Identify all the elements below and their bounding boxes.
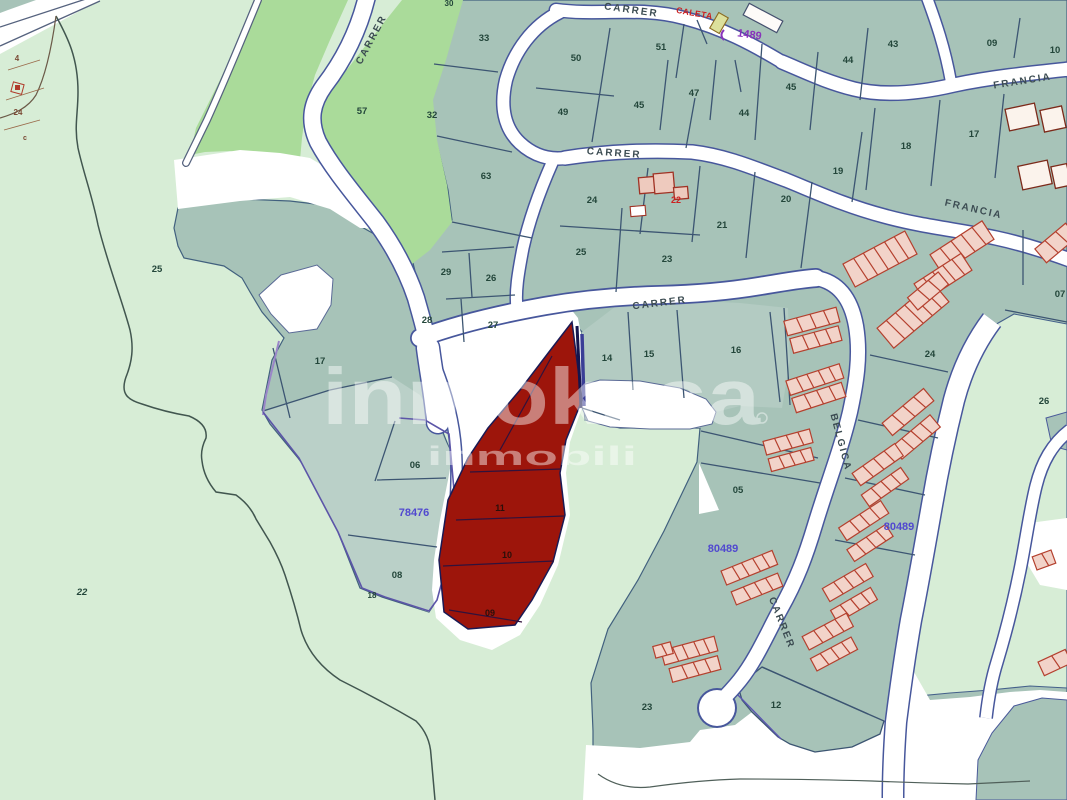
- svg-text:18: 18: [368, 591, 377, 600]
- svg-text:25: 25: [576, 247, 587, 258]
- svg-text:44: 44: [843, 55, 854, 66]
- svg-text:63: 63: [481, 171, 492, 182]
- svg-text:19: 19: [833, 166, 844, 177]
- svg-text:05: 05: [733, 485, 744, 496]
- svg-text:78476: 78476: [399, 507, 430, 519]
- svg-text:51: 51: [656, 42, 667, 53]
- svg-text:25: 25: [152, 264, 163, 275]
- svg-text:12: 12: [771, 700, 782, 711]
- svg-text:24: 24: [14, 108, 23, 117]
- svg-text:26: 26: [486, 273, 497, 284]
- svg-text:10: 10: [1050, 45, 1061, 56]
- svg-text:57: 57: [357, 106, 368, 117]
- svg-text:06: 06: [410, 460, 421, 471]
- svg-text:07: 07: [1055, 289, 1066, 300]
- svg-text:10: 10: [502, 550, 512, 560]
- svg-text:inmokasa: inmokasa: [322, 352, 761, 441]
- svg-text:49: 49: [558, 107, 569, 118]
- svg-text:50: 50: [571, 53, 582, 64]
- svg-text:18: 18: [901, 141, 912, 152]
- svg-text:21: 21: [717, 220, 728, 231]
- svg-text:24: 24: [587, 195, 598, 206]
- svg-text:20: 20: [781, 194, 792, 205]
- svg-text:08: 08: [392, 570, 403, 581]
- svg-text:c: c: [23, 135, 27, 142]
- svg-text:44: 44: [739, 108, 750, 119]
- svg-text:32: 32: [427, 110, 438, 121]
- svg-text:4: 4: [15, 54, 20, 63]
- svg-text:23: 23: [642, 702, 653, 713]
- svg-text:45: 45: [634, 100, 645, 111]
- svg-text:43: 43: [888, 39, 899, 50]
- svg-text:80489: 80489: [708, 543, 739, 555]
- svg-text:47: 47: [689, 88, 700, 99]
- svg-text:45: 45: [786, 82, 797, 93]
- svg-text:28: 28: [422, 315, 433, 326]
- svg-text:24: 24: [925, 349, 936, 360]
- svg-text:17: 17: [969, 129, 980, 140]
- svg-text:09: 09: [987, 38, 998, 49]
- svg-text:27: 27: [488, 320, 499, 331]
- svg-text:11: 11: [495, 503, 505, 513]
- svg-text:22: 22: [76, 587, 88, 598]
- svg-text:inmobili: inmobili: [427, 441, 637, 471]
- svg-text:09: 09: [485, 608, 495, 618]
- svg-text:33: 33: [479, 33, 490, 44]
- svg-text:80489: 80489: [884, 521, 915, 533]
- svg-text:26: 26: [1039, 396, 1050, 407]
- svg-text:23: 23: [662, 254, 673, 265]
- svg-text:29: 29: [441, 267, 452, 278]
- svg-text:22: 22: [671, 195, 681, 205]
- svg-text:30: 30: [445, 0, 454, 8]
